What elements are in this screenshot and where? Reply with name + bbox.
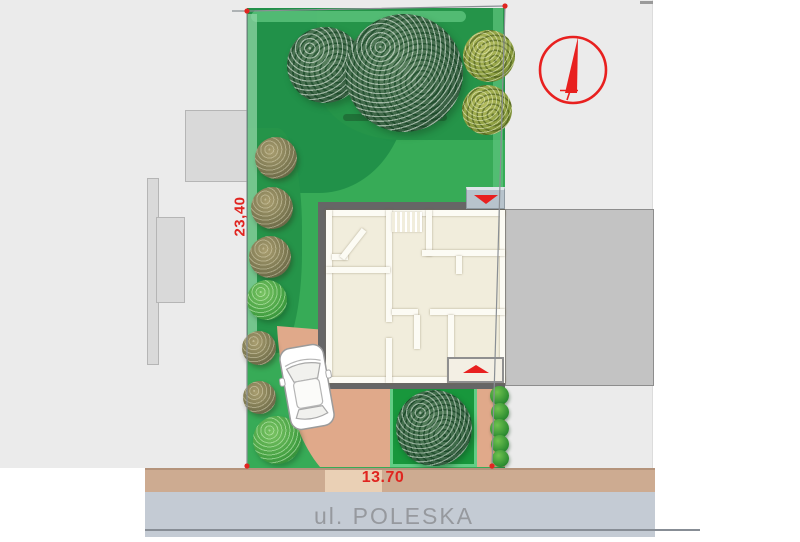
interior-wall-angled	[340, 228, 367, 260]
interior-wall	[422, 250, 505, 256]
large-tree-canopy	[345, 14, 463, 132]
tree-canopy	[462, 85, 512, 135]
tree-canopy	[253, 416, 301, 464]
neighbor-building-right	[505, 209, 654, 386]
street-name-label: ul. POLESKA	[278, 503, 510, 530]
dimension-label-left: 23,40	[232, 187, 249, 247]
shrub	[243, 381, 276, 414]
shrub	[249, 236, 291, 278]
lawn-highlight	[251, 11, 466, 22]
interior-wall	[456, 256, 462, 274]
garden-tree-canopy	[396, 390, 472, 466]
neighbor-building-left-top	[185, 110, 249, 182]
street-lower-band	[145, 531, 655, 537]
entrance-arrow-down-icon	[474, 195, 498, 204]
tree-canopy	[463, 30, 515, 82]
dimension-label-front: 13.70	[352, 469, 414, 487]
hedge-bush	[492, 450, 509, 467]
shrub	[242, 331, 276, 365]
shrub	[255, 137, 297, 179]
stairs	[392, 212, 422, 232]
neighbor-building-left-mid	[156, 217, 185, 303]
shrub	[247, 280, 287, 320]
entrance-porch-bottom	[447, 357, 504, 383]
entrance-arrow-up-icon	[463, 365, 489, 373]
site-plan-drawing: 23,40 13.70 ul. POLESKA	[0, 0, 800, 542]
shrub	[251, 187, 293, 229]
interior-wall	[386, 338, 392, 383]
interior-wall	[430, 309, 505, 315]
entrance-canopy-top	[466, 187, 505, 209]
edge-mark	[640, 1, 653, 4]
interior-wall	[326, 267, 390, 273]
interior-wall	[414, 315, 420, 349]
exterior-wall	[326, 210, 332, 383]
